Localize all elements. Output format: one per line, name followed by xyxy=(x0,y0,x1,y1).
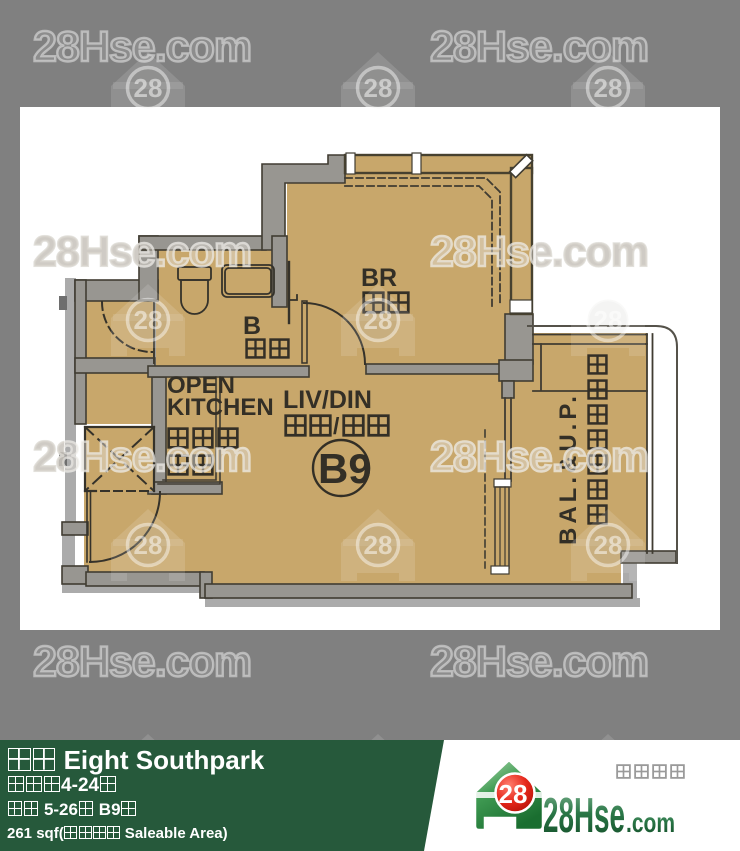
svg-text:28Hse: 28Hse xyxy=(543,789,625,843)
svg-text:.com: .com xyxy=(626,807,675,838)
svg-text:28Hse.com: 28Hse.com xyxy=(33,228,251,276)
svg-text:LIV/DIN: LIV/DIN xyxy=(283,386,372,414)
svg-text:28Hse.com: 28Hse.com xyxy=(430,228,648,276)
svg-text:B: B xyxy=(243,312,261,340)
svg-text:KITCHEN: KITCHEN xyxy=(167,394,274,421)
svg-text:/: / xyxy=(333,413,340,439)
svg-text:28Hse.com: 28Hse.com xyxy=(33,433,251,481)
svg-text:28Hse.com: 28Hse.com xyxy=(430,433,648,481)
svg-text:28Hse.com: 28Hse.com xyxy=(33,638,251,686)
svg-text:B9: B9 xyxy=(318,445,372,492)
svg-text:28Hse.com: 28Hse.com xyxy=(430,638,648,686)
svg-text:28: 28 xyxy=(499,779,528,809)
